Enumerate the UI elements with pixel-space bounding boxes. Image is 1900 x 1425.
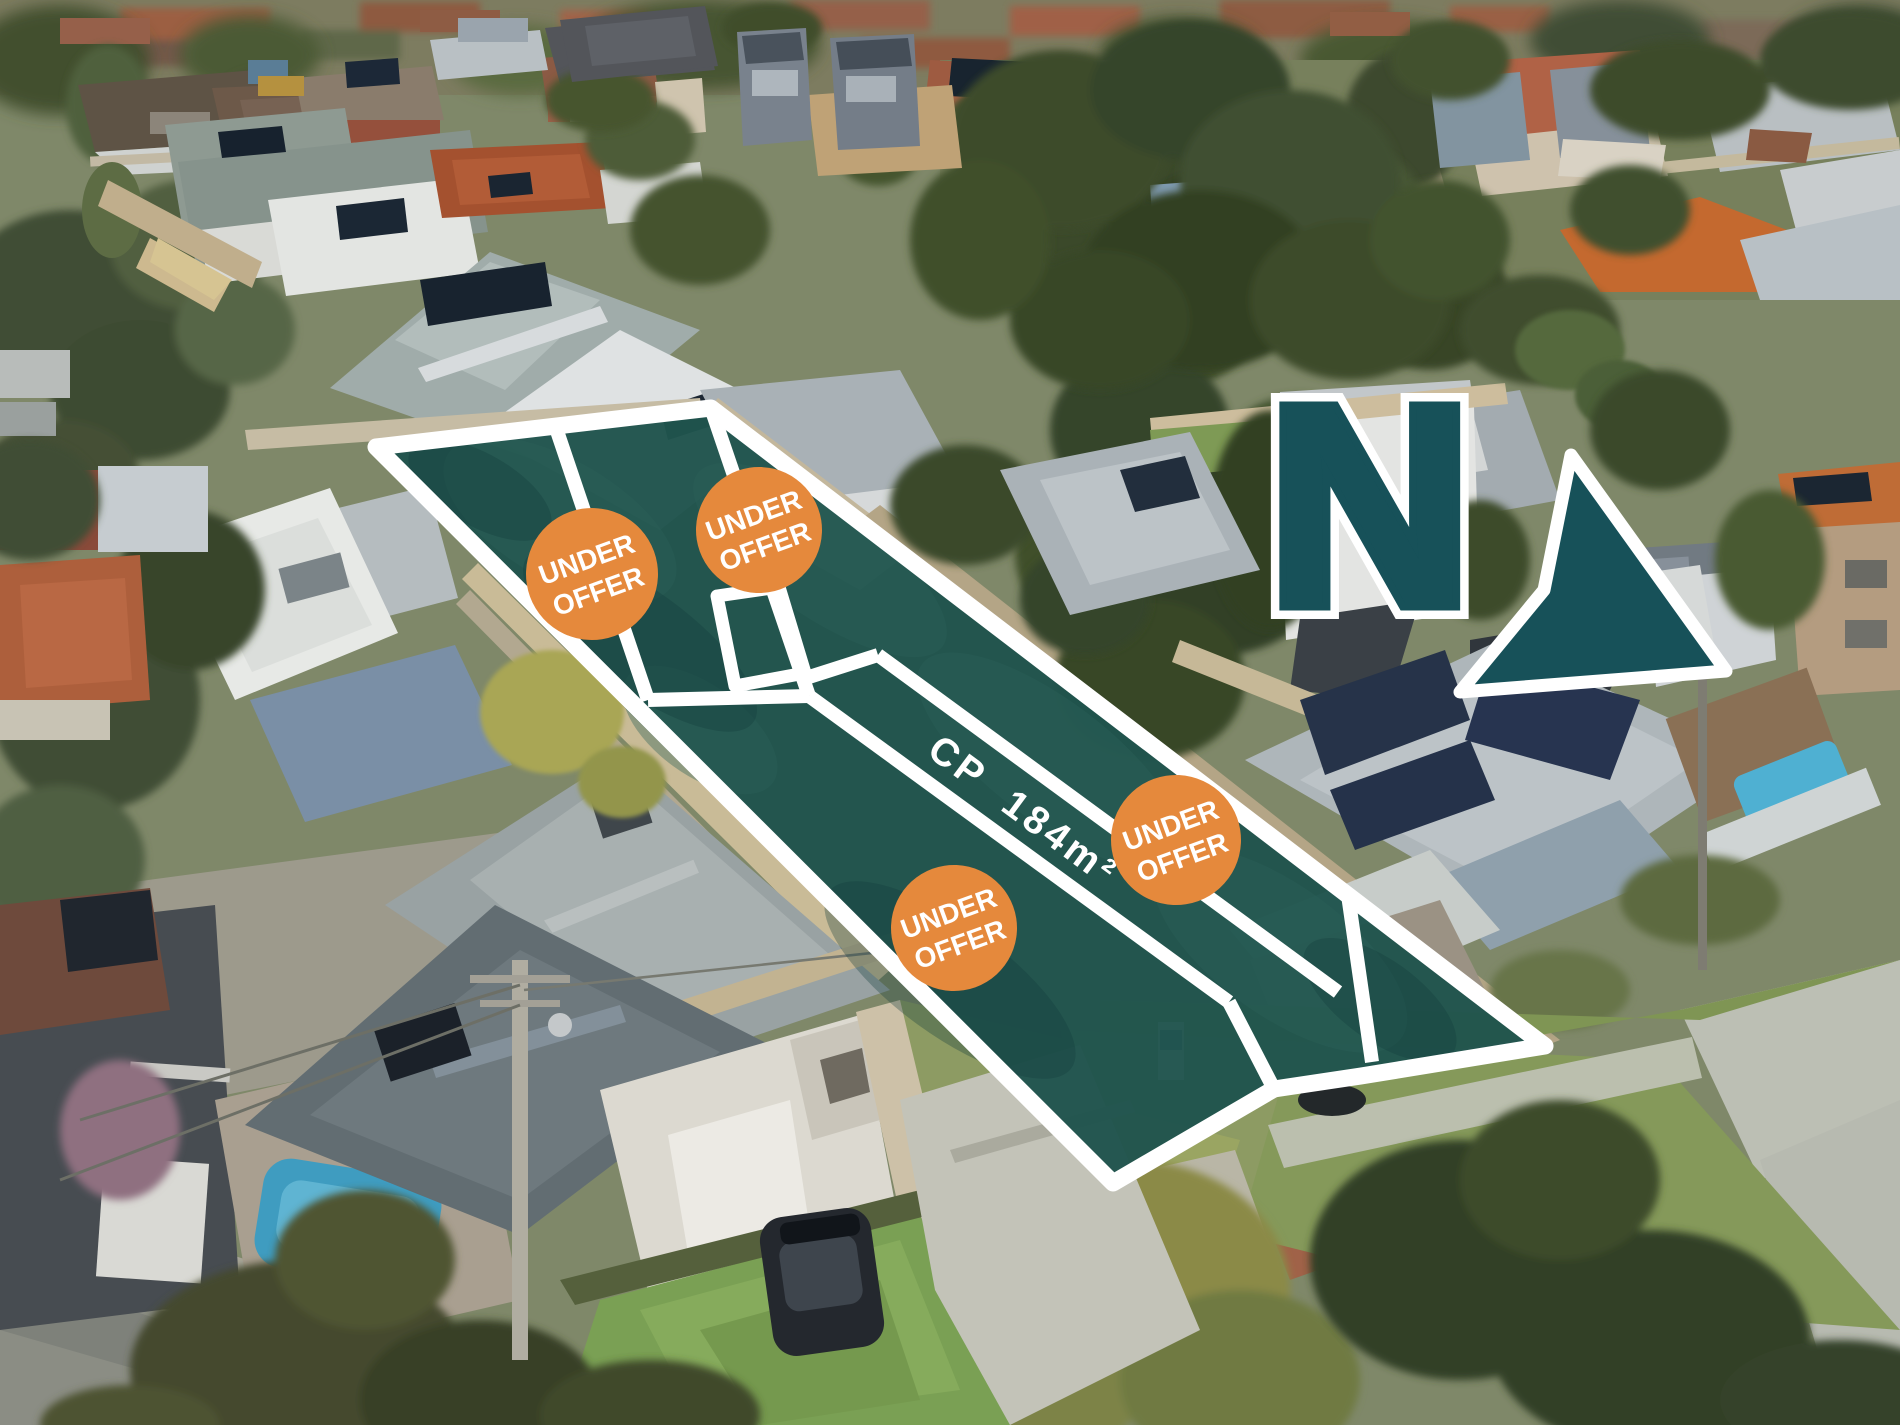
svg-text:N: N xyxy=(1268,348,1472,663)
